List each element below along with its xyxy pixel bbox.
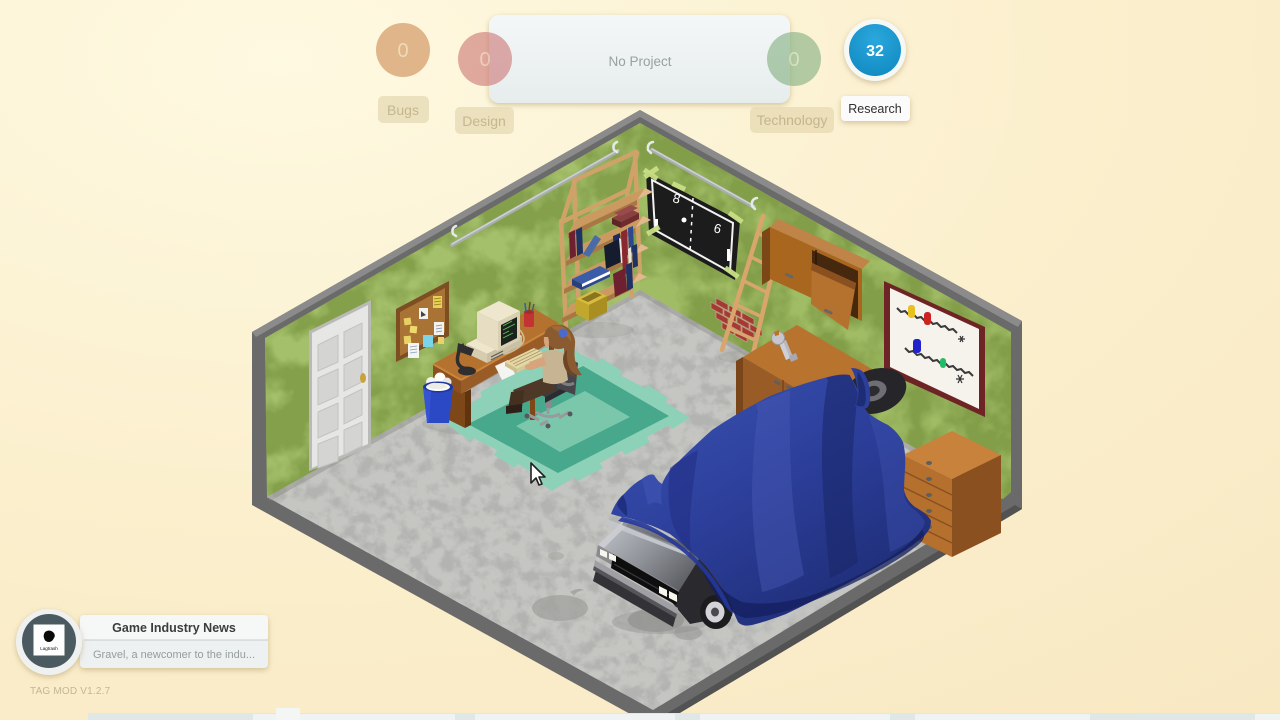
svg-text:0: 0 [788,49,799,71]
svg-text:Research: Research [848,102,902,116]
svg-text:Lagtrash: Lagtrash [40,646,58,651]
svg-text:0: 0 [397,40,408,62]
svg-text:Gravel, a newcomer to the indu: Gravel, a newcomer to the indu... [93,649,255,661]
svg-text:0: 0 [479,49,490,71]
svg-text:Game Industry News: Game Industry News [112,621,236,635]
svg-text:Design: Design [462,113,506,129]
svg-text:32: 32 [866,43,884,60]
svg-text:Bugs: Bugs [387,102,419,118]
svg-text:No Project: No Project [608,54,671,69]
svg-text:Technology: Technology [757,112,828,128]
svg-text:TAG MOD V1.2.7: TAG MOD V1.2.7 [30,686,111,697]
